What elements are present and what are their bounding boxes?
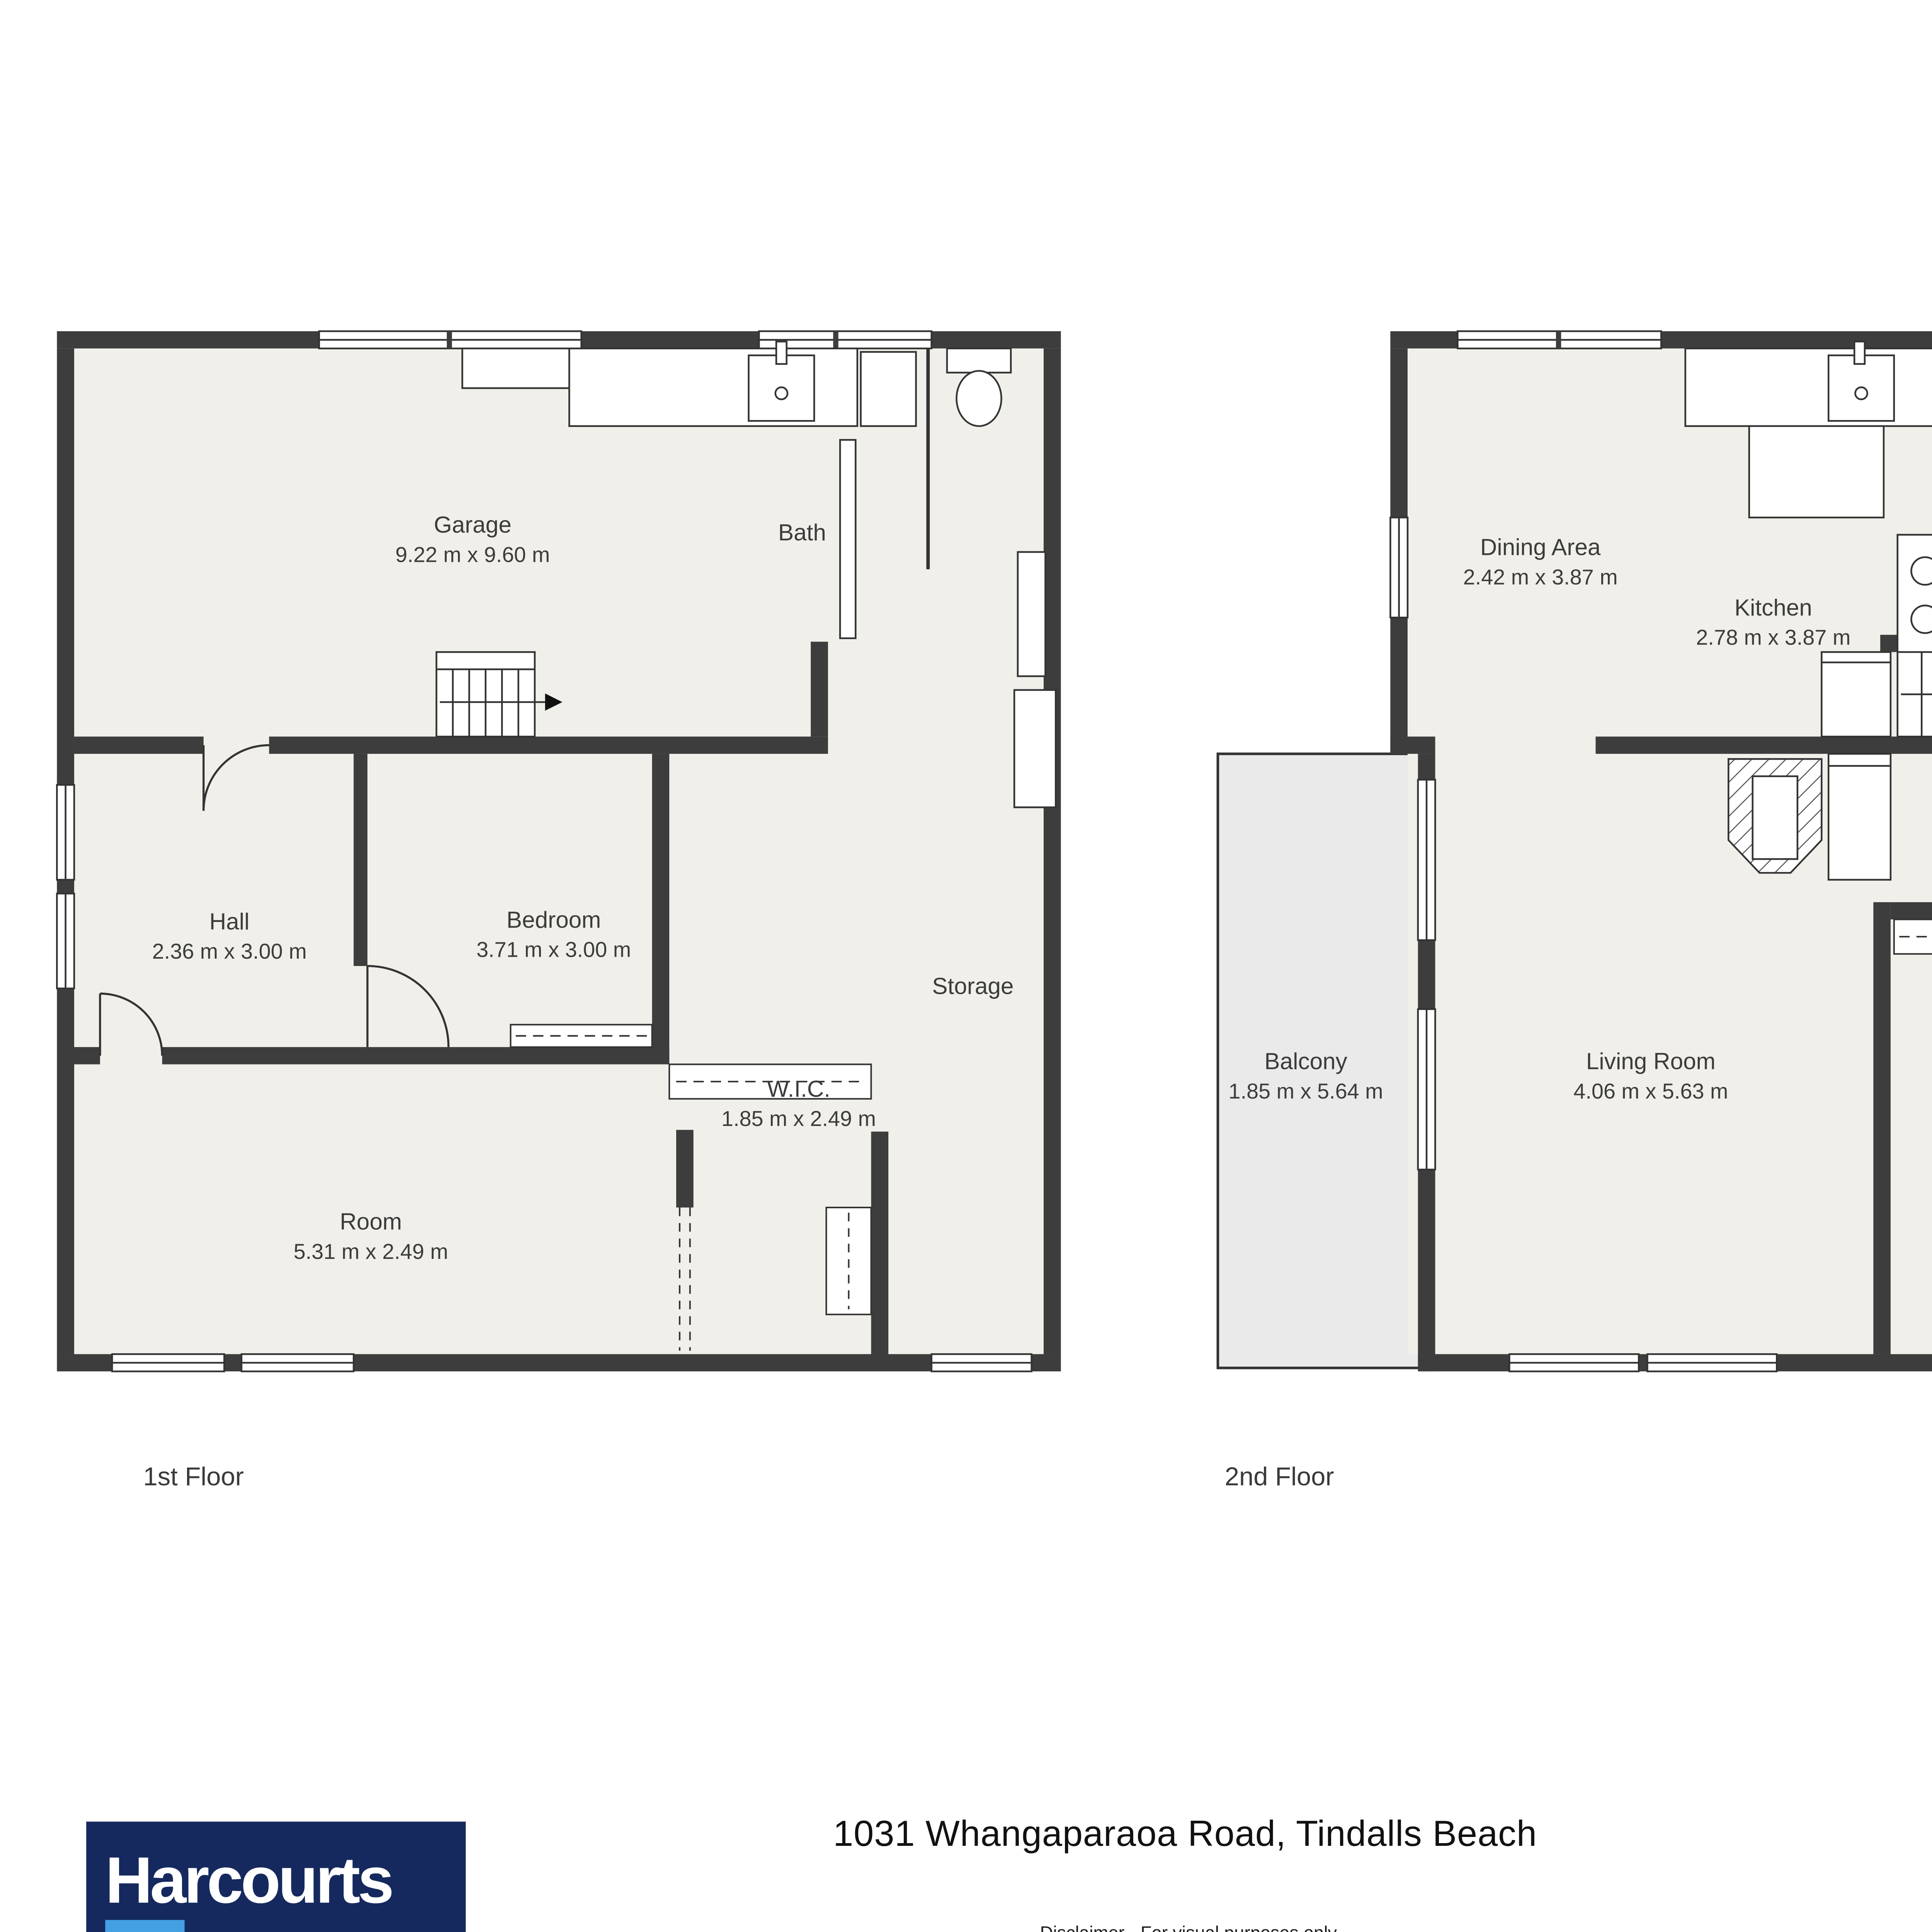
faucet-icon [1854,342,1865,364]
harcourts-logo-accent-bar [105,1920,184,1932]
floorplan-page: Garage 9.22 m x 9.60 m Bath Hall 2.36 m … [0,0,1932,1932]
first-floor-plan [57,331,1061,1371]
counter [462,349,569,388]
harcourts-logo-text: Harcourts [105,1846,391,1920]
f2-hall-cabinet [1828,754,1891,880]
f1-floor-area [74,349,1044,1354]
label-dining: Dining Area 2.42 m x 3.87 m [1463,533,1618,592]
label-f1-bedroom: Bedroom 3.71 m x 3.00 m [476,905,631,965]
toilet-bowl-icon [956,371,1001,426]
label-balcony: Balcony 1.85 m x 5.64 m [1228,1047,1383,1106]
disclaimer-line-1: Disclaimer - For visual purposes only. [1040,1923,1340,1932]
second-floor-tag: 2nd Floor [1225,1463,1334,1492]
drain-icon [776,387,787,399]
second-floor-plan [1218,331,1932,1371]
page-title: 1031 Whangaparaoa Road, Tindalls Beach [833,1815,1537,1856]
faucet-icon [776,342,787,364]
label-storage: Storage [932,971,1014,1002]
burner-icon [1911,605,1932,633]
label-bath: Bath [778,518,826,548]
cylinder-cupboard [1014,690,1056,808]
label-f1-hall: Hall 2.36 m x 3.00 m [152,907,307,966]
partition-line [926,349,930,569]
f2-stairs [1898,652,1932,737]
label-kitchen: Kitchen 2.78 m x 3.87 m [1696,593,1850,653]
drain-icon [1855,387,1867,399]
label-room: Room 5.31 m x 2.49 m [294,1207,448,1267]
kitchen-island [1749,426,1884,518]
label-wic: W.I.C. 1.85 m x 2.49 m [721,1074,876,1134]
f2-fireplace [1728,759,1821,873]
fridge-icon [1821,652,1891,737]
stove-icon [1898,535,1932,656]
burner-icon [1911,557,1932,585]
toilet-tank-icon [947,349,1011,373]
label-living: Living Room 4.06 m x 5.63 m [1573,1047,1728,1106]
label-garage: Garage 9.22 m x 9.60 m [395,510,550,570]
duct [840,440,855,638]
cabinet [1018,552,1045,676]
harcourts-logo: Harcourts [86,1821,466,1932]
washer-icon [861,352,916,426]
first-floor-tag: 1st Floor [143,1463,244,1492]
counter [1685,349,1932,426]
